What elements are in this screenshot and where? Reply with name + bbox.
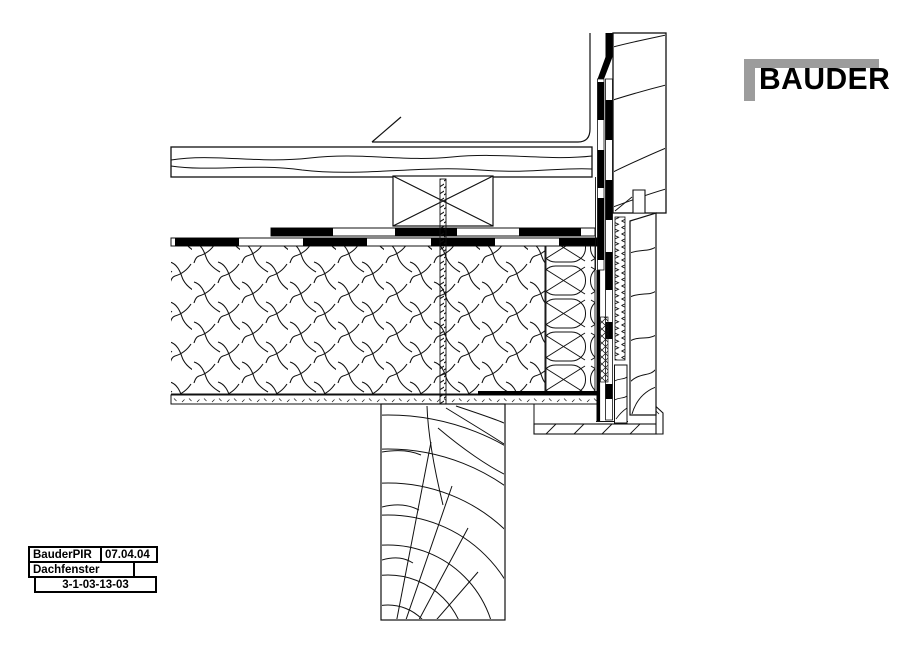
- mineral-wool-strip: [546, 246, 595, 393]
- bauder-logo: BAUDER: [744, 59, 886, 103]
- title-block-row-3: 3-1-03-13-03: [28, 578, 158, 593]
- timber-batten: [615, 365, 628, 423]
- cross-hatch-seal: [601, 317, 609, 382]
- compression-tape: [615, 217, 625, 360]
- logo-wordmark: BAUDER: [759, 65, 886, 96]
- title-block: BauderPIR 07.04.04 Dachfenster 3-1-03-13…: [28, 546, 158, 593]
- vapour-barrier-bar-lower: [171, 238, 600, 246]
- membrane-flashing-upstand: [372, 33, 590, 142]
- drawing-sheet: BAUDER BauderPIR 07.04.04 Dachfenster 3-…: [0, 0, 920, 650]
- window-frame-timber: [613, 33, 666, 213]
- sheathing-board: [171, 395, 598, 404]
- curb-timber-lower: [630, 213, 656, 415]
- pir-insulation: [171, 246, 545, 394]
- roof-membrane-band: [171, 147, 592, 177]
- timber-rafter: [150, 404, 626, 650]
- vapour-barrier-bar-upper: [271, 228, 595, 236]
- drawing-number-cell: 3-1-03-13-03: [34, 576, 157, 593]
